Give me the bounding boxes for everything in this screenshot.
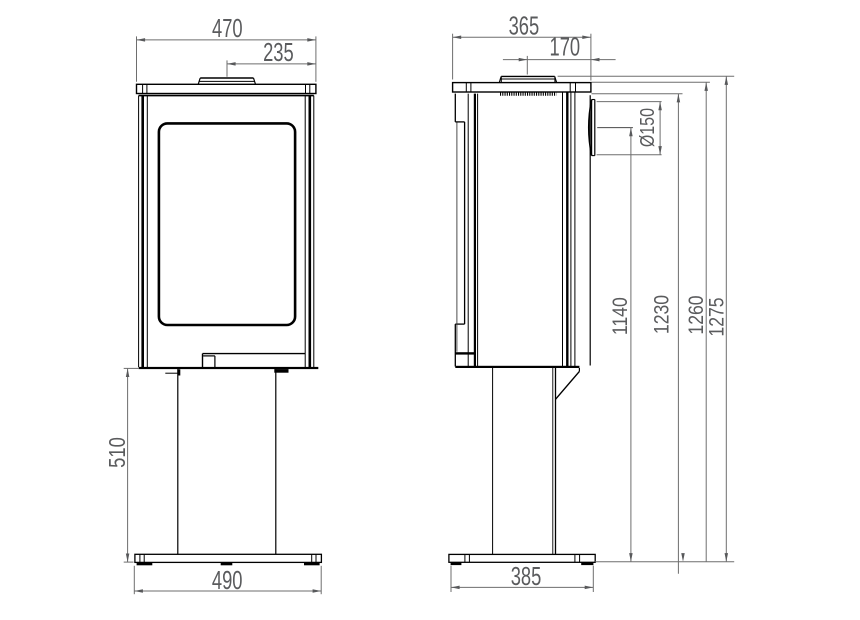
svg-text:385: 385 — [511, 562, 542, 591]
svg-text:365: 365 — [509, 12, 540, 41]
svg-text:470: 470 — [212, 14, 243, 43]
svg-text:Ø150: Ø150 — [637, 108, 659, 147]
svg-text:1275: 1275 — [705, 297, 729, 336]
svg-text:490: 490 — [212, 566, 243, 595]
svg-text:510: 510 — [105, 437, 130, 468]
svg-text:235: 235 — [263, 38, 294, 67]
svg-text:1230: 1230 — [650, 295, 674, 334]
svg-text:170: 170 — [549, 32, 580, 61]
svg-text:1140: 1140 — [608, 297, 632, 335]
